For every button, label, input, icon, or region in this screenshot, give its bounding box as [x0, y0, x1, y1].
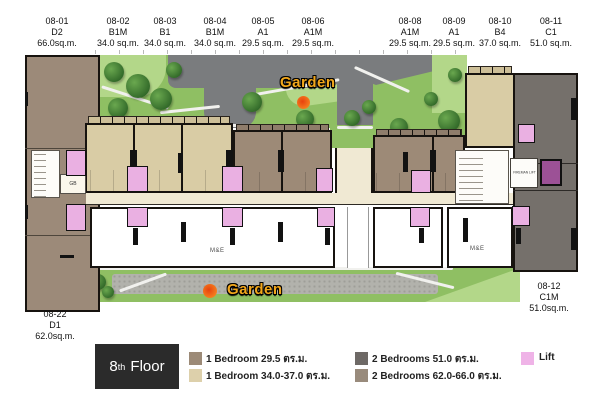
column: [430, 150, 436, 172]
corridor-main: [86, 193, 513, 205]
tree-icon: [344, 110, 360, 126]
lift-shaft: [411, 170, 431, 193]
column: [403, 152, 408, 172]
unit-type: D2: [26, 27, 88, 38]
wall-line: [25, 235, 100, 236]
column: [181, 222, 186, 242]
wall-accent: [571, 98, 577, 120]
walkway: [347, 207, 369, 268]
floor-number: 8: [109, 358, 117, 375]
garden-dot: [203, 284, 217, 298]
column: [419, 228, 424, 243]
legend-swatch-2br-62-66: [355, 369, 368, 382]
grass-patch: [432, 55, 467, 113]
floor-badge: 8th Floor: [95, 344, 179, 389]
legend-label-2br-62-66: 2 Bedrooms 62.0-66.0 ตร.ม.: [372, 369, 502, 384]
unit-area: 66.0sq.m.: [26, 38, 88, 49]
column: [278, 150, 284, 172]
legend-swatch-1br-295: [189, 352, 202, 365]
wall-accent: [25, 205, 28, 219]
wall-line: [513, 190, 578, 191]
legend-swatch-lift: [521, 352, 534, 365]
garden-label-bottom: Garden: [227, 281, 283, 298]
room-gb-label: GB: [69, 181, 76, 187]
stair-treads: [34, 153, 46, 197]
unit-number: 08-12: [518, 281, 580, 292]
me-large-label: M&E: [210, 248, 225, 254]
legend-label-lift: Lift: [539, 352, 555, 363]
unit-area: 62.0sq.m.: [24, 331, 86, 342]
lift-shaft: [316, 168, 333, 192]
tree-icon: [362, 100, 376, 114]
me-small-label: M&E: [470, 246, 485, 252]
unit-number: 08-22: [24, 309, 86, 320]
tree-icon: [104, 62, 124, 82]
unit-label-08-22: 08-22 D1 62.0sq.m.: [24, 309, 86, 342]
floor-plan-page: 08-01 D2 66.0sq.m. 08-02 B1M 34.0 sq.m. …: [0, 0, 600, 408]
tree-icon: [150, 88, 172, 110]
fireman-lift-room: FIREMAN LIFT: [510, 158, 538, 188]
lift-lobby-stairs: [455, 150, 509, 204]
lift-shaft: [66, 204, 86, 231]
lift-shaft: [127, 166, 148, 192]
legend-label-1br-34-37: 1 Bedroom 34.0-37.0 ตร.ม.: [206, 369, 330, 384]
unit-area: 51.0 sq.m.: [520, 38, 582, 49]
legend-swatch-1br-34-37: [189, 369, 202, 382]
column: [230, 228, 235, 245]
unit-label-08-01: 08-01 D2 66.0sq.m.: [26, 16, 88, 49]
lift-shaft: [127, 207, 148, 227]
garden-dot: [297, 96, 310, 109]
lift-shaft: [512, 206, 530, 226]
tree-icon: [448, 68, 462, 82]
lift-shaft: [410, 207, 430, 227]
column: [133, 228, 138, 245]
legend-swatch-2br-51: [355, 352, 368, 365]
floor-word: Floor: [130, 358, 164, 375]
wall-accent: [60, 255, 74, 258]
me-block-small: [447, 207, 513, 268]
column: [278, 222, 283, 242]
unit-type: D1: [24, 320, 86, 331]
unit-number: 08-11: [520, 16, 582, 27]
unit-label-08-12: 08-12 C1M 51.0sq.m.: [518, 281, 580, 314]
wall-accent: [25, 92, 28, 106]
room-gb: GB: [60, 174, 86, 194]
legend-label-2br-51: 2 Bedrooms 51.0 ตร.ม.: [372, 352, 479, 367]
unit-type: C1: [520, 27, 582, 38]
tree-icon: [424, 92, 438, 106]
garden-label-top: Garden: [280, 74, 336, 91]
unit-number: 08-01: [26, 16, 88, 27]
lift-shaft: [66, 150, 86, 176]
garden-path: [337, 126, 373, 129]
column: [325, 228, 330, 245]
unit-B4: [465, 73, 515, 148]
bathroom-detail: [90, 170, 230, 191]
unit-number: 08-06: [282, 16, 344, 27]
stairwell: [31, 150, 60, 198]
lift-shaft: [222, 166, 243, 192]
unit-label-08-06: 08-06 A1M 29.5 sq.m.: [282, 16, 344, 49]
tree-icon: [166, 62, 182, 78]
lift-shaft: [518, 124, 535, 143]
stair-treads: [459, 157, 483, 201]
floor-ordinal: th: [118, 362, 126, 372]
lift-shaft: [222, 207, 243, 227]
wall-accent: [571, 228, 577, 250]
unit-area: 51.0sq.m.: [518, 303, 580, 314]
fireman-lift-shaft: [540, 159, 562, 186]
tree-icon: [242, 92, 262, 112]
service-block: [373, 207, 443, 268]
column: [463, 218, 468, 242]
shrub-icon: [102, 286, 114, 298]
unit-type: A1M: [282, 27, 344, 38]
legend-label-1br-295: 1 Bedroom 29.5 ตร.ม.: [206, 352, 307, 367]
column: [178, 153, 183, 173]
unit-area: 29.5 sq.m.: [282, 38, 344, 49]
fireman-lift-label: FIREMAN LIFT: [513, 171, 536, 174]
lift-shaft: [317, 207, 335, 227]
unit-label-08-11: 08-11 C1 51.0 sq.m.: [520, 16, 582, 49]
dimension-ticks: [95, 50, 475, 54]
unit-type: C1M: [518, 292, 580, 303]
column: [516, 228, 521, 244]
tree-icon: [126, 74, 150, 98]
tree-icon: [108, 98, 128, 118]
